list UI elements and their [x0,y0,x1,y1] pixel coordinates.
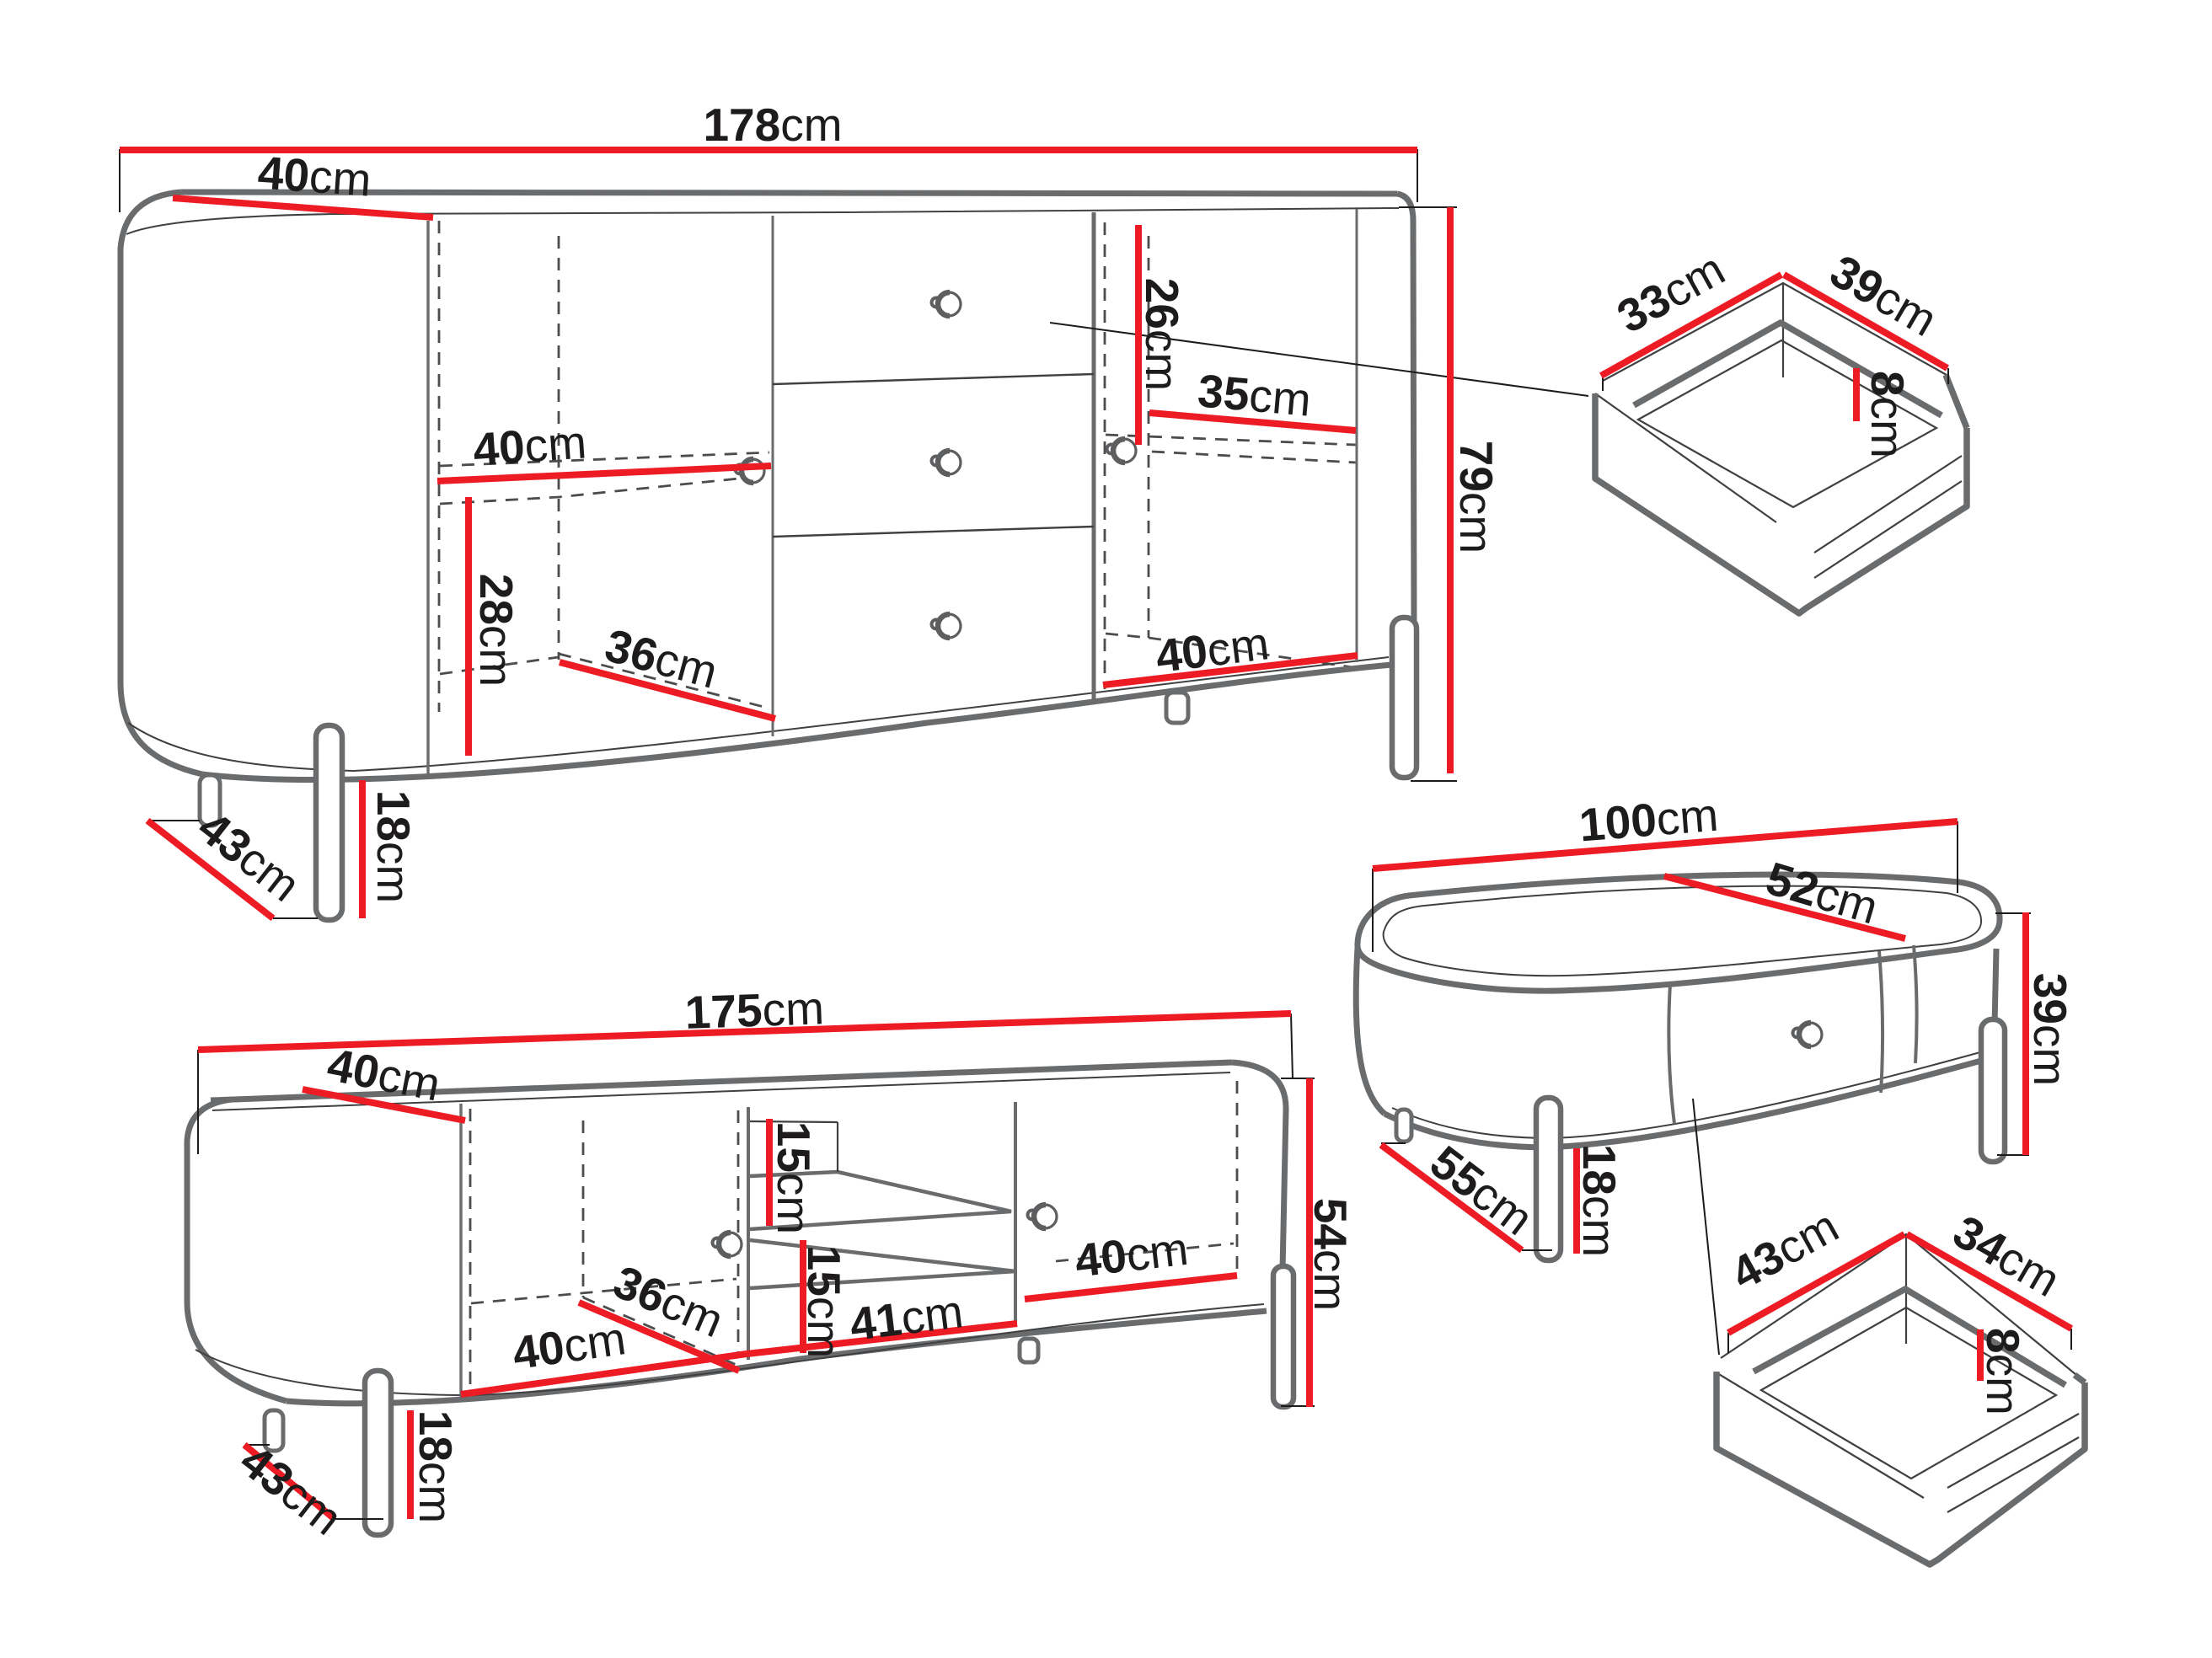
svg-text:40cm: 40cm [256,146,373,206]
svg-text:15cm: 15cm [798,1245,850,1359]
svg-text:178cm: 178cm [703,99,842,151]
svg-text:8cm: 8cm [1861,371,1914,458]
svg-text:8cm: 8cm [1977,1328,2029,1415]
svg-text:79cm: 79cm [1450,441,1502,554]
svg-text:100cm: 100cm [1577,789,1720,852]
svg-text:54cm: 54cm [1304,1198,1357,1312]
svg-text:15cm: 15cm [768,1121,820,1235]
svg-text:40cm: 40cm [471,415,588,475]
svg-text:18cm: 18cm [1573,1144,1626,1258]
svg-text:39cm: 39cm [2024,973,2076,1087]
svg-text:26cm: 26cm [1136,278,1188,392]
svg-text:28cm: 28cm [470,574,522,687]
svg-text:18cm: 18cm [367,790,420,904]
svg-text:18cm: 18cm [410,1410,462,1524]
svg-text:35cm: 35cm [1196,364,1313,425]
svg-text:175cm: 175cm [684,981,825,1039]
